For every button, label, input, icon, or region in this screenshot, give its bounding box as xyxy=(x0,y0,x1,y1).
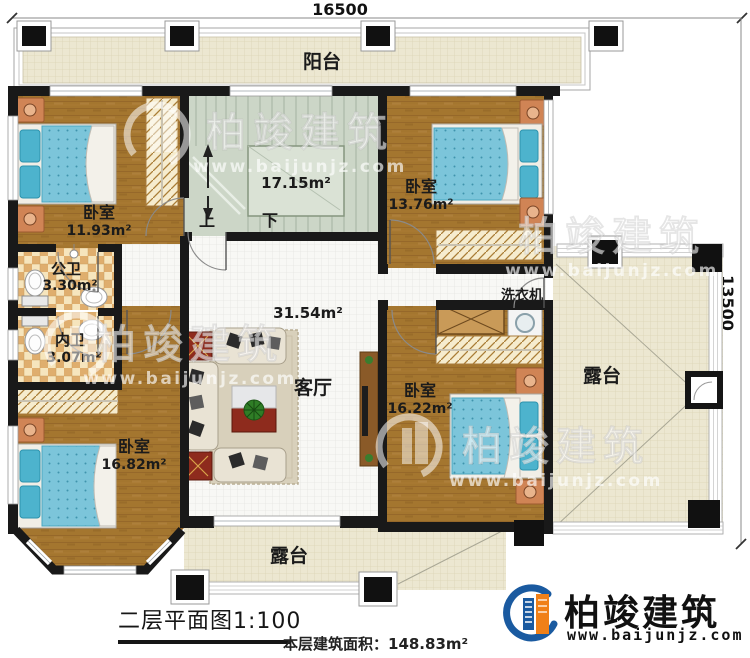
terrace-bottom-floor xyxy=(184,526,506,590)
stairs-down-label: 下 xyxy=(262,211,278,230)
bedroom-bottom-right-area: 16.22m² xyxy=(387,401,452,417)
public-bathroom-area: 3.30m² xyxy=(42,278,97,294)
living-room-area: 31.54m² xyxy=(273,304,343,322)
bedroom-bottom-left-area: 16.82m² xyxy=(101,457,166,473)
dimension-top: 16500 xyxy=(7,0,747,23)
wardrobe-bottom-left xyxy=(16,388,118,414)
floor-plan-page: 16500 13500 xyxy=(0,0,750,658)
brand-logo: 柏竣建筑 www.baijunjz.com xyxy=(502,582,748,654)
private-bathroom-area: 3.07m² xyxy=(46,350,101,366)
stairwell-area: 17.15m² xyxy=(261,174,331,192)
floor-area-label: 本层建筑面积：148.83m² xyxy=(283,633,468,654)
wardrobe-top-left xyxy=(146,98,178,206)
brand-website: www.baijunjz.com xyxy=(567,626,744,644)
stairs-up-label: 上 xyxy=(199,211,215,230)
floor-plan-canvas: 16500 13500 xyxy=(0,0,750,658)
tv-cabinet xyxy=(360,352,378,466)
wardrobe-bottom-right xyxy=(436,336,542,364)
dimension-top-value: 16500 xyxy=(312,0,368,19)
balcony-label: 阳台 xyxy=(303,50,341,73)
brand-logo-icon xyxy=(502,582,560,648)
corridor-floor xyxy=(118,244,182,308)
terrace-right-label: 露台 xyxy=(583,364,621,387)
living-room-furniture xyxy=(184,328,298,484)
wardrobe-top-right xyxy=(436,230,542,260)
private-bathroom-label: 内卫 xyxy=(55,331,85,349)
bedroom-top-right-area: 13.76m² xyxy=(388,197,453,213)
bedroom-bottom-left-label: 卧室 xyxy=(118,437,150,456)
plan-title-underline xyxy=(118,640,290,644)
bedroom-bottom-right-label: 卧室 xyxy=(404,381,436,400)
public-bathroom-label: 公卫 xyxy=(51,260,81,278)
living-room-label: 客厅 xyxy=(294,376,332,399)
bedroom-bottom-left-entry-floor xyxy=(118,306,184,390)
terrace-bottom-label: 露台 xyxy=(270,544,308,567)
bedroom-top-left-label: 卧室 xyxy=(83,203,115,222)
bedroom-top-right-label: 卧室 xyxy=(405,177,437,196)
plan-title: 二层平面图1:100 xyxy=(118,603,301,635)
laundry-label: 洗衣机 xyxy=(501,287,543,304)
bedroom-top-left-area: 11.93m² xyxy=(66,223,131,239)
